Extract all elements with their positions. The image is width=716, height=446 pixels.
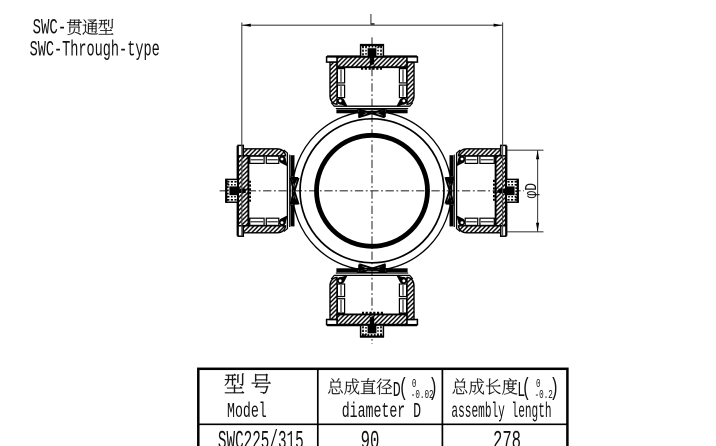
svg-text:L: L [369,11,375,29]
svg-text:): ) [550,376,559,404]
svg-text:): ) [429,376,438,404]
svg-text:278: 278 [493,427,521,446]
svg-text:(: ( [522,376,531,404]
svg-text:SWC225/315: SWC225/315 [218,428,304,446]
svg-text:Model: Model [227,400,267,424]
svg-text:assembly length: assembly length [451,401,551,425]
svg-text:90: 90 [361,427,380,446]
svg-text:φD: φD [524,183,542,199]
svg-text:SWC-Through-type: SWC-Through-type [30,36,160,63]
svg-text:diameter D: diameter D [342,400,421,424]
